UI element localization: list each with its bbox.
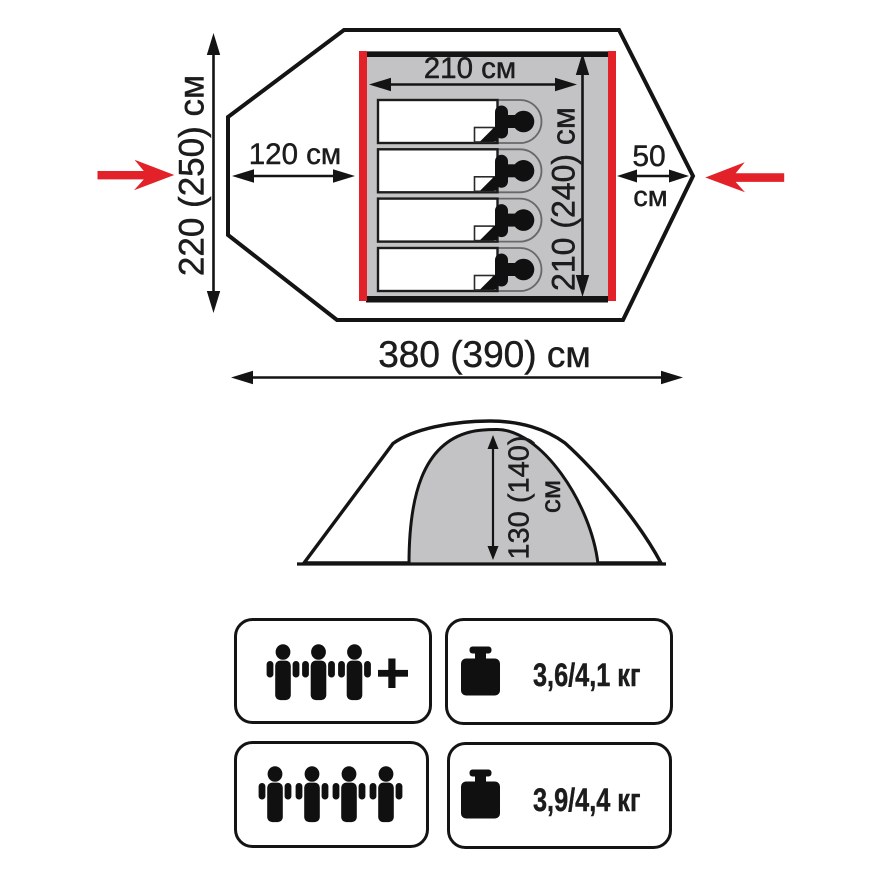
- svg-text:см: см: [535, 480, 566, 513]
- svg-text:3,9/4,4 кг: 3,9/4,4 кг: [533, 783, 640, 819]
- svg-text:210 (240) см: 210 (240) см: [546, 107, 582, 291]
- svg-text:130 (140): 130 (140): [504, 435, 536, 559]
- svg-text:50: 50: [632, 140, 665, 173]
- svg-text:220 (250) см: 220 (250) см: [173, 75, 212, 276]
- svg-text:120 см: 120 см: [249, 138, 341, 171]
- svg-text:см: см: [633, 181, 667, 213]
- svg-text:380 (390) см: 380 (390) см: [378, 334, 591, 375]
- svg-text:3,6/4,1 кг: 3,6/4,1 кг: [533, 658, 640, 694]
- svg-text:210 см: 210 см: [424, 52, 516, 85]
